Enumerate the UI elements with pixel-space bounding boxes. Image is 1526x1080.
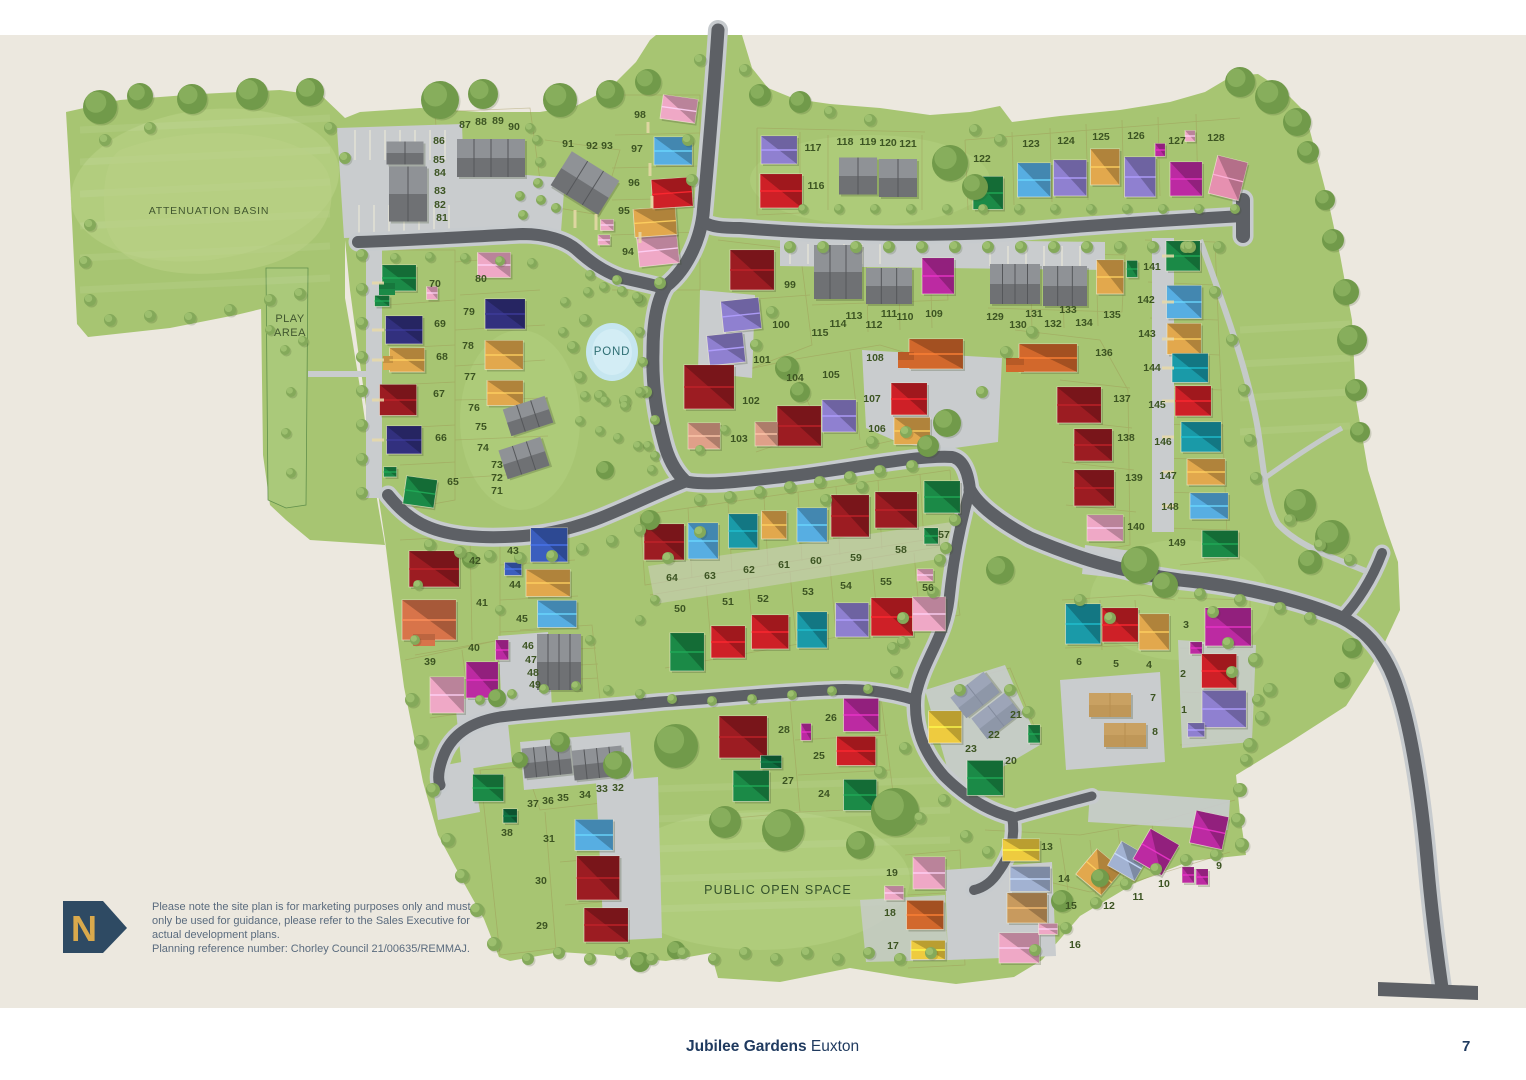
svg-text:58: 58 bbox=[895, 544, 907, 556]
svg-text:50: 50 bbox=[674, 603, 686, 615]
svg-text:Jubilee Gardens Euxton: Jubilee Gardens Euxton bbox=[686, 1038, 859, 1055]
svg-text:88: 88 bbox=[475, 116, 487, 128]
svg-text:N: N bbox=[71, 908, 97, 949]
svg-text:97: 97 bbox=[631, 143, 643, 155]
svg-text:9: 9 bbox=[1216, 860, 1222, 872]
svg-text:46: 46 bbox=[522, 640, 534, 652]
svg-text:66: 66 bbox=[435, 432, 447, 444]
svg-text:20: 20 bbox=[1005, 755, 1017, 767]
svg-text:115: 115 bbox=[812, 327, 829, 339]
svg-text:143: 143 bbox=[1138, 328, 1156, 340]
svg-text:60: 60 bbox=[810, 555, 822, 567]
svg-text:82: 82 bbox=[434, 199, 446, 211]
svg-text:5: 5 bbox=[1113, 658, 1119, 670]
svg-text:42: 42 bbox=[469, 555, 481, 567]
svg-text:98: 98 bbox=[634, 109, 646, 121]
svg-text:92: 92 bbox=[586, 140, 598, 152]
svg-text:61: 61 bbox=[778, 559, 790, 571]
svg-text:74: 74 bbox=[477, 442, 489, 454]
svg-text:15: 15 bbox=[1065, 900, 1077, 912]
svg-text:103: 103 bbox=[730, 433, 748, 445]
svg-text:26: 26 bbox=[825, 712, 837, 724]
svg-text:120: 120 bbox=[879, 137, 897, 149]
svg-text:55: 55 bbox=[880, 576, 892, 588]
svg-text:90: 90 bbox=[508, 121, 520, 133]
svg-text:124: 124 bbox=[1057, 135, 1075, 147]
svg-text:25: 25 bbox=[813, 750, 825, 762]
svg-text:148: 148 bbox=[1161, 501, 1179, 513]
svg-text:57: 57 bbox=[938, 529, 950, 541]
svg-text:64: 64 bbox=[666, 572, 678, 584]
svg-text:22: 22 bbox=[988, 729, 1000, 741]
svg-text:17: 17 bbox=[887, 940, 899, 952]
svg-text:131: 131 bbox=[1025, 308, 1043, 320]
svg-text:12: 12 bbox=[1103, 900, 1115, 912]
svg-text:85: 85 bbox=[433, 154, 445, 166]
svg-text:19: 19 bbox=[886, 867, 898, 879]
svg-text:96: 96 bbox=[628, 177, 640, 189]
svg-text:100: 100 bbox=[772, 319, 790, 331]
svg-text:81: 81 bbox=[436, 212, 448, 224]
svg-text:130: 130 bbox=[1009, 319, 1027, 331]
svg-text:13: 13 bbox=[1041, 841, 1053, 853]
svg-text:73: 73 bbox=[491, 459, 503, 471]
svg-text:119: 119 bbox=[860, 136, 877, 148]
svg-text:108: 108 bbox=[866, 352, 884, 364]
svg-text:141: 141 bbox=[1143, 261, 1161, 273]
svg-text:27: 27 bbox=[782, 775, 794, 787]
svg-text:104: 104 bbox=[786, 372, 804, 384]
svg-text:144: 144 bbox=[1143, 362, 1161, 374]
svg-text:134: 134 bbox=[1075, 317, 1093, 329]
svg-text:76: 76 bbox=[468, 402, 480, 414]
svg-text:45: 45 bbox=[516, 613, 528, 625]
svg-text:51: 51 bbox=[722, 596, 734, 608]
svg-text:40: 40 bbox=[468, 642, 480, 654]
svg-text:65: 65 bbox=[447, 476, 459, 488]
svg-text:33: 33 bbox=[596, 783, 608, 795]
svg-text:67: 67 bbox=[433, 388, 445, 400]
svg-text:110: 110 bbox=[897, 311, 914, 323]
svg-text:122: 122 bbox=[973, 153, 991, 165]
svg-text:62: 62 bbox=[743, 564, 755, 576]
svg-text:102: 102 bbox=[742, 395, 760, 407]
svg-text:69: 69 bbox=[434, 318, 446, 330]
svg-text:89: 89 bbox=[492, 115, 504, 127]
svg-text:8: 8 bbox=[1152, 726, 1158, 738]
svg-text:127: 127 bbox=[1168, 135, 1186, 147]
svg-text:113: 113 bbox=[846, 310, 863, 322]
svg-text:56: 56 bbox=[922, 582, 934, 594]
svg-text:147: 147 bbox=[1159, 470, 1177, 482]
svg-text:77: 77 bbox=[464, 371, 476, 383]
svg-text:36: 36 bbox=[542, 795, 554, 807]
svg-text:105: 105 bbox=[822, 369, 840, 381]
svg-text:10: 10 bbox=[1158, 878, 1170, 890]
svg-text:PLAY: PLAY bbox=[275, 313, 304, 325]
svg-text:117: 117 bbox=[805, 142, 822, 154]
svg-text:41: 41 bbox=[476, 597, 488, 609]
svg-text:37: 37 bbox=[527, 798, 539, 810]
svg-text:PUBLIC OPEN SPACE: PUBLIC OPEN SPACE bbox=[704, 883, 852, 897]
svg-text:7: 7 bbox=[1150, 692, 1156, 704]
svg-text:121: 121 bbox=[899, 138, 917, 150]
svg-text:128: 128 bbox=[1207, 132, 1225, 144]
svg-text:23: 23 bbox=[965, 743, 977, 755]
svg-text:Planning reference number: Cho: Planning reference number: Chorley Counc… bbox=[152, 943, 470, 955]
svg-text:POND: POND bbox=[594, 346, 630, 358]
svg-text:137: 137 bbox=[1113, 393, 1131, 405]
svg-text:140: 140 bbox=[1127, 521, 1145, 533]
svg-text:only be used for guidance, ple: only be used for guidance, please refer … bbox=[152, 915, 470, 927]
svg-text:123: 123 bbox=[1022, 138, 1040, 150]
svg-text:138: 138 bbox=[1117, 432, 1135, 444]
svg-text:29: 29 bbox=[536, 920, 548, 932]
svg-text:75: 75 bbox=[475, 421, 487, 433]
svg-text:35: 35 bbox=[557, 792, 569, 804]
svg-text:71: 71 bbox=[491, 485, 503, 497]
svg-text:107: 107 bbox=[863, 393, 881, 405]
svg-text:72: 72 bbox=[491, 472, 503, 484]
svg-text:125: 125 bbox=[1092, 131, 1110, 143]
svg-text:1: 1 bbox=[1181, 704, 1187, 716]
svg-text:68: 68 bbox=[436, 351, 448, 363]
svg-text:actual development plans.: actual development plans. bbox=[152, 929, 280, 941]
svg-text:146: 146 bbox=[1154, 436, 1172, 448]
svg-text:21: 21 bbox=[1010, 709, 1022, 721]
svg-text:95: 95 bbox=[618, 205, 630, 217]
svg-text:111: 111 bbox=[881, 308, 898, 320]
svg-text:86: 86 bbox=[433, 135, 445, 147]
svg-text:38: 38 bbox=[501, 827, 513, 839]
svg-text:114: 114 bbox=[830, 318, 847, 330]
svg-text:109: 109 bbox=[925, 308, 943, 320]
svg-text:78: 78 bbox=[462, 340, 474, 352]
svg-text:145: 145 bbox=[1148, 399, 1166, 411]
svg-text:43: 43 bbox=[507, 545, 519, 557]
svg-text:AREA: AREA bbox=[274, 327, 306, 339]
svg-text:101: 101 bbox=[753, 354, 771, 366]
svg-text:44: 44 bbox=[509, 579, 521, 591]
svg-text:129: 129 bbox=[986, 311, 1004, 323]
svg-text:59: 59 bbox=[850, 552, 862, 564]
svg-text:52: 52 bbox=[757, 593, 769, 605]
svg-text:54: 54 bbox=[840, 580, 852, 592]
svg-text:32: 32 bbox=[612, 782, 624, 794]
svg-text:133: 133 bbox=[1059, 304, 1077, 316]
svg-text:149: 149 bbox=[1168, 537, 1186, 549]
svg-text:91: 91 bbox=[562, 138, 574, 150]
svg-text:16: 16 bbox=[1069, 939, 1081, 951]
svg-text:84: 84 bbox=[434, 167, 446, 179]
svg-text:83: 83 bbox=[434, 185, 446, 197]
svg-text:18: 18 bbox=[884, 907, 896, 919]
svg-text:3: 3 bbox=[1183, 619, 1189, 631]
svg-text:30: 30 bbox=[535, 875, 547, 887]
svg-text:4: 4 bbox=[1146, 659, 1152, 671]
svg-text:142: 142 bbox=[1137, 294, 1155, 306]
svg-text:14: 14 bbox=[1058, 873, 1070, 885]
svg-text:106: 106 bbox=[868, 423, 886, 435]
svg-text:6: 6 bbox=[1076, 656, 1082, 668]
svg-text:94: 94 bbox=[622, 246, 634, 258]
svg-text:39: 39 bbox=[424, 656, 436, 668]
svg-text:49: 49 bbox=[529, 679, 541, 691]
svg-text:34: 34 bbox=[579, 789, 591, 801]
svg-text:31: 31 bbox=[543, 833, 555, 845]
svg-text:118: 118 bbox=[837, 136, 854, 148]
svg-text:135: 135 bbox=[1103, 309, 1121, 321]
svg-text:116: 116 bbox=[808, 180, 825, 192]
svg-text:136: 136 bbox=[1095, 347, 1113, 359]
svg-text:99: 99 bbox=[784, 279, 796, 291]
svg-text:63: 63 bbox=[704, 570, 716, 582]
svg-text:112: 112 bbox=[866, 319, 883, 331]
svg-text:7: 7 bbox=[1462, 1038, 1470, 1055]
svg-text:132: 132 bbox=[1044, 318, 1062, 330]
svg-text:53: 53 bbox=[802, 586, 814, 598]
svg-text:70: 70 bbox=[429, 278, 441, 290]
svg-text:Please note the site plan is f: Please note the site plan is for marketi… bbox=[152, 901, 471, 913]
svg-text:48: 48 bbox=[527, 667, 539, 679]
svg-text:2: 2 bbox=[1180, 668, 1186, 680]
svg-text:87: 87 bbox=[459, 119, 471, 131]
svg-text:126: 126 bbox=[1127, 130, 1145, 142]
svg-text:79: 79 bbox=[463, 306, 475, 318]
svg-text:11: 11 bbox=[1132, 891, 1143, 903]
svg-text:80: 80 bbox=[475, 273, 487, 285]
svg-text:139: 139 bbox=[1125, 472, 1143, 484]
svg-text:93: 93 bbox=[601, 140, 613, 152]
svg-text:ATTENUATION BASIN: ATTENUATION BASIN bbox=[149, 205, 270, 217]
svg-text:24: 24 bbox=[818, 788, 830, 800]
svg-text:47: 47 bbox=[525, 654, 537, 666]
svg-text:28: 28 bbox=[778, 724, 790, 736]
